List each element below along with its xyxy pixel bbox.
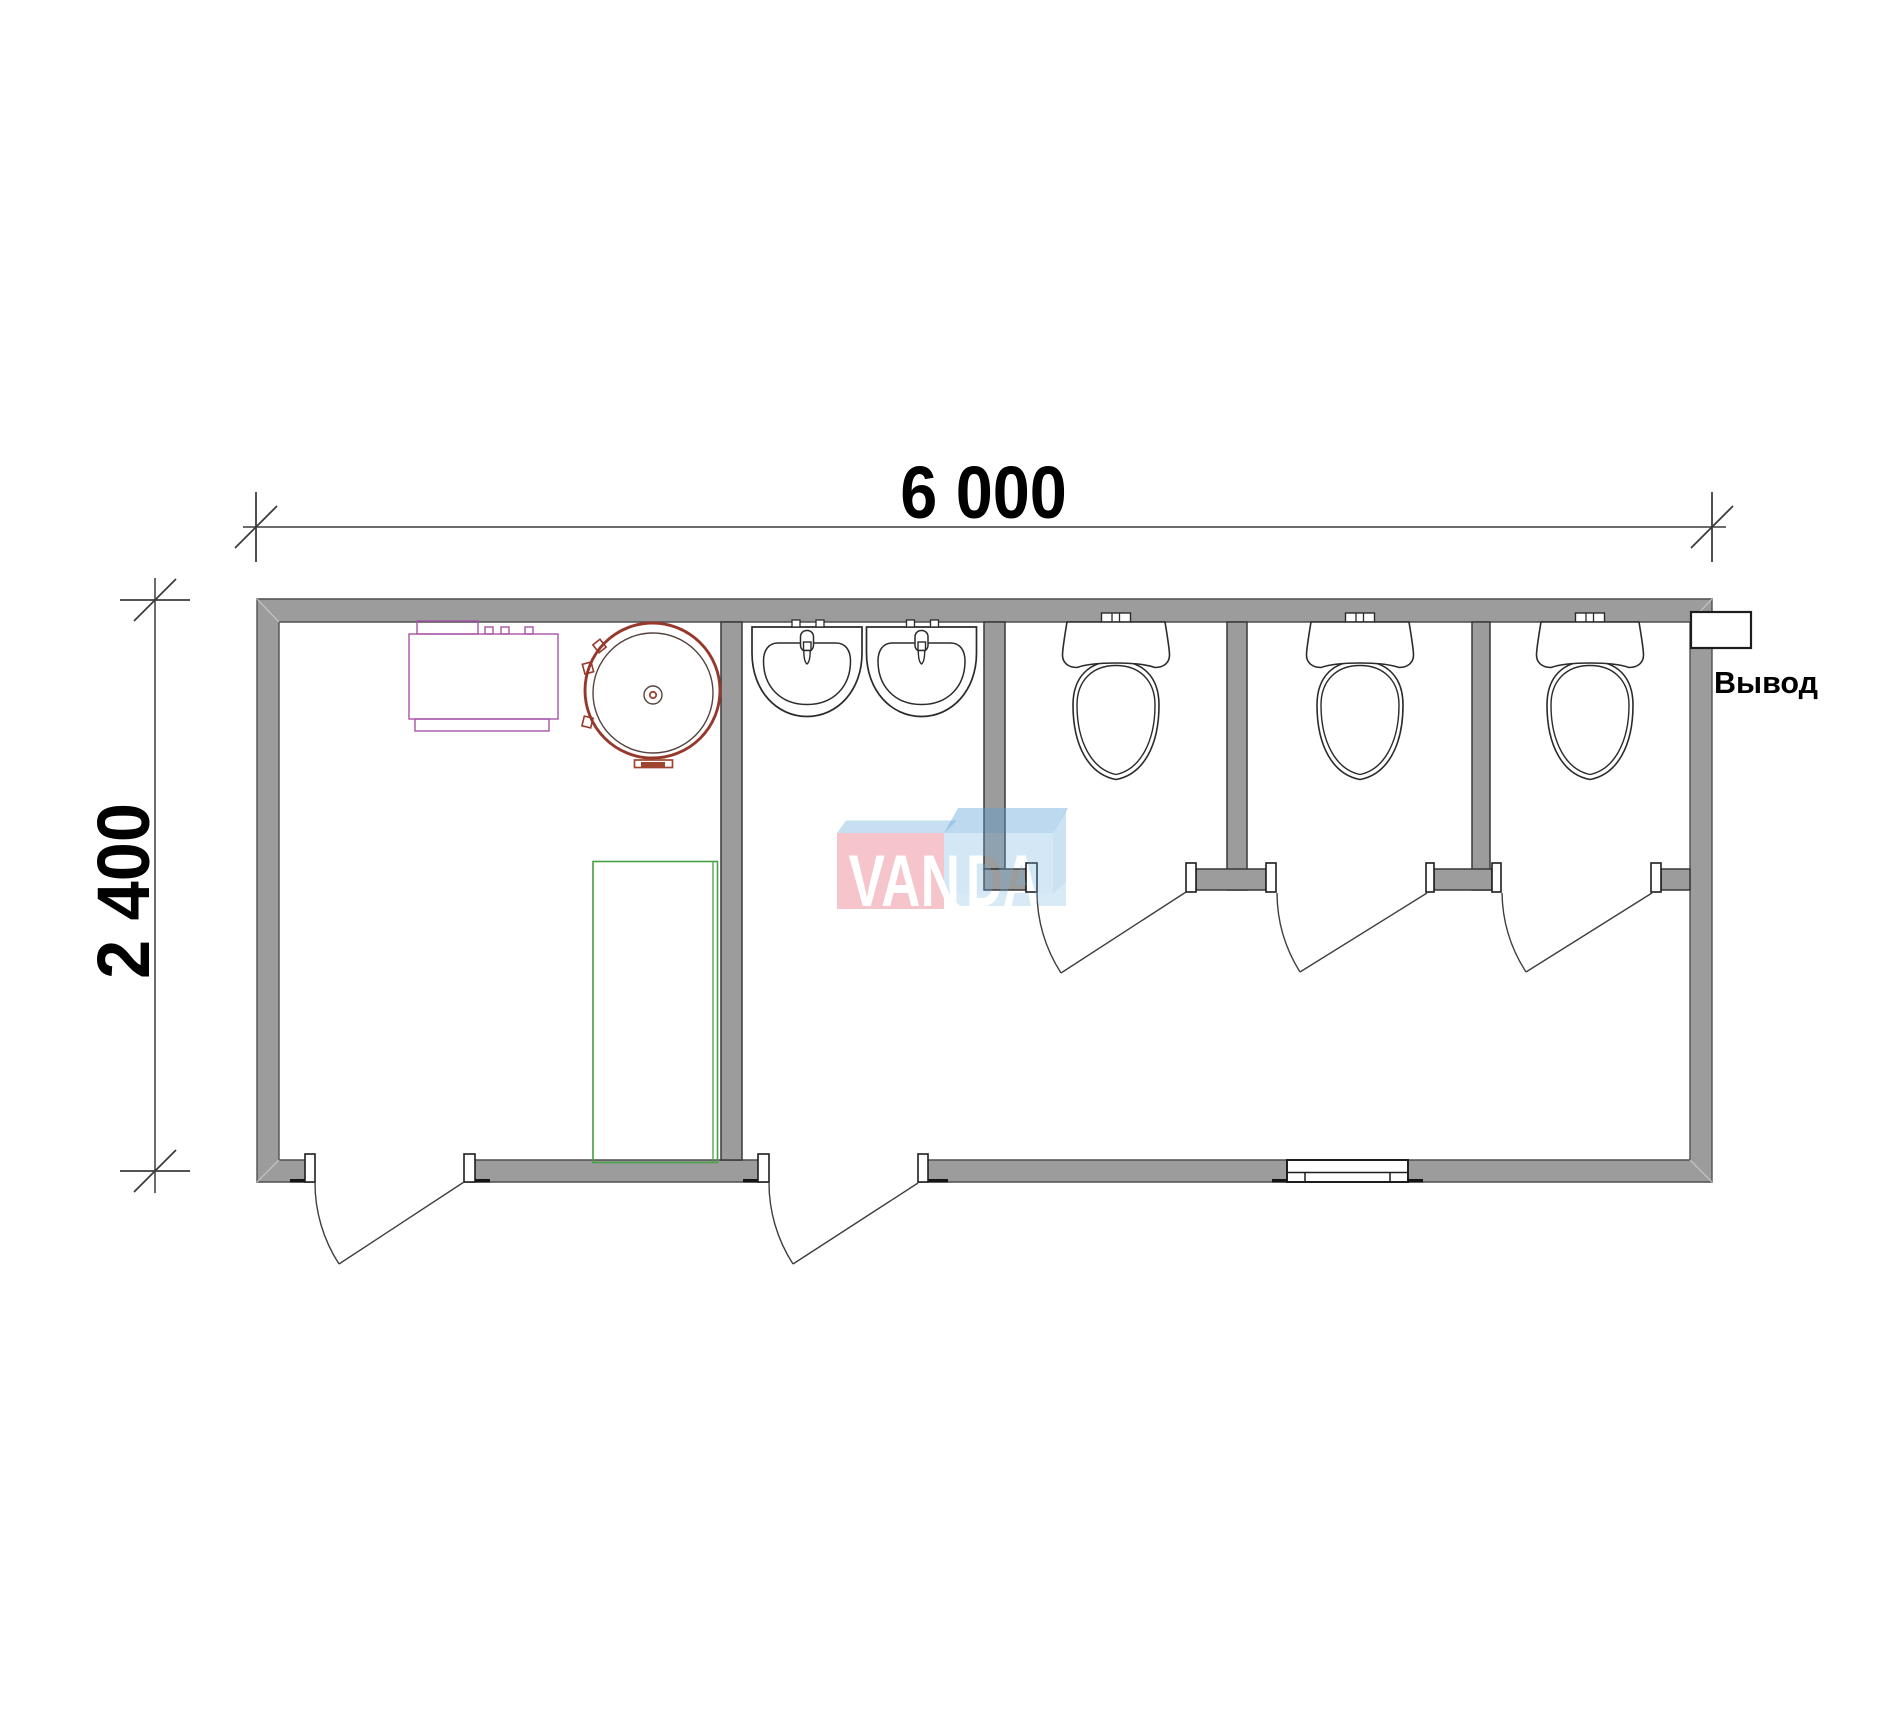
svg-text:Вывод: Вывод	[1714, 666, 1818, 700]
svg-text:6 000: 6 000	[900, 451, 1067, 534]
svg-text:2 400: 2 400	[83, 803, 165, 979]
